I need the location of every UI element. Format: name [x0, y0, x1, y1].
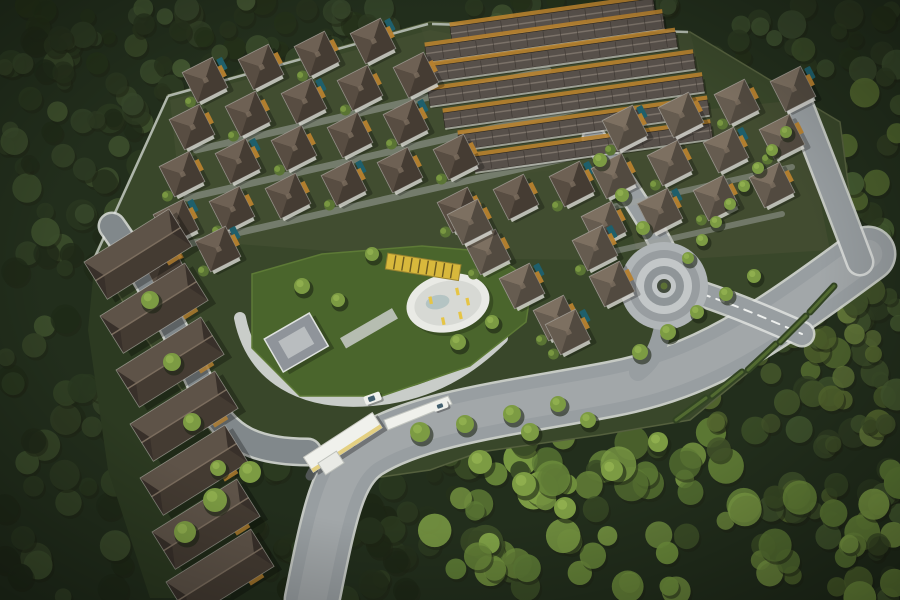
vignette-overlay — [0, 0, 900, 600]
aerial-masterplan-render — [0, 0, 900, 600]
